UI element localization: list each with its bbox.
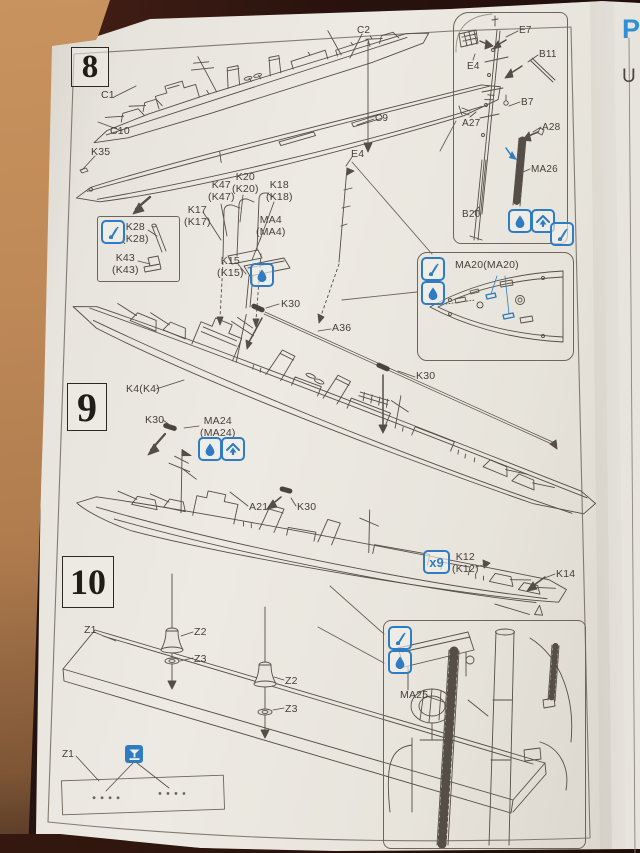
- photographed-instruction-sheet: 8 9 10 C1 C10 C2 C9 K35 E4 K47 (K47) K20…: [0, 0, 640, 853]
- callout-z2-aft: Z2: [285, 676, 298, 688]
- step-9-numeral: 9: [77, 384, 97, 431]
- step-10-number: 10: [62, 556, 114, 608]
- nameplate-drawing: [61, 775, 224, 815]
- adjacent-page-text-fragment: U: [622, 66, 636, 88]
- e4-mast-part-drawing: [318, 168, 354, 323]
- ship-8-superstructure-drawing: [79, 0, 433, 148]
- inset-callout-e4: E4: [467, 61, 480, 72]
- callout-z1: Z1: [84, 625, 97, 637]
- glue-icon: [508, 209, 532, 233]
- callout-k12: K12 (K12): [452, 552, 479, 576]
- detail-inset-frame: [383, 620, 586, 849]
- callout-c9: C9: [375, 113, 388, 124]
- callout-a21: A21: [249, 502, 268, 514]
- fit-direction-icon: [221, 437, 245, 461]
- callout-a36: A36: [332, 323, 351, 335]
- step-8-numeral: 8: [82, 49, 99, 86]
- paint-icon: [388, 626, 412, 650]
- paint-icon: [550, 222, 574, 246]
- callout-k30-port: K30: [145, 415, 164, 427]
- callout-k30-aft: K30: [416, 371, 435, 383]
- adjacent-page-heading-fragment: P: [622, 14, 640, 45]
- callout-k35: K35: [91, 147, 110, 159]
- inset-callout-b11: B11: [539, 49, 557, 60]
- inset-callout-ma26: MA26: [531, 164, 558, 175]
- pedestal-parts: [161, 628, 276, 715]
- callout-k47: K47 (K47): [208, 180, 235, 204]
- step-8-number: 8: [71, 47, 109, 87]
- pedestal-arrows: [172, 574, 265, 731]
- inset-callout-b7: B7: [521, 97, 534, 108]
- inset-callout-b20: B20: [462, 209, 480, 220]
- callout-k17: K17 (K17): [184, 205, 211, 229]
- drill-holes-icon: [125, 745, 143, 763]
- callout-k28: K28 (K28): [122, 222, 149, 246]
- glue-icon: [250, 263, 274, 287]
- callout-k43: K43 (K43): [112, 253, 139, 277]
- callout-k30-fore: K30: [281, 299, 300, 311]
- k35-part: [80, 168, 88, 173]
- callout-z1-plate: Z1: [62, 749, 74, 760]
- callout-e4-main: E4: [351, 149, 364, 161]
- callout-k30-boat: K30: [297, 502, 316, 514]
- glue-icon: [388, 650, 412, 674]
- inset-callout-ma25: MA25: [400, 690, 428, 702]
- callout-c2: C2: [357, 25, 370, 36]
- glue-icon: [198, 437, 222, 461]
- adjacent-page-border: [629, 38, 635, 853]
- inset-callout-e7: E7: [519, 25, 532, 36]
- inset-callout-a28: A28: [542, 122, 560, 133]
- callout-k20: K20 (K20): [232, 172, 259, 196]
- callout-z2-fore: Z2: [194, 627, 207, 639]
- inset-callout-lines: [318, 121, 456, 663]
- callout-c10: C10: [110, 126, 130, 138]
- callout-k14: K14: [556, 569, 575, 581]
- step-10-numeral: 10: [70, 561, 106, 603]
- quantity-x9-icon: x9: [423, 550, 450, 574]
- callout-ma4: MA4 (MA4): [256, 215, 286, 239]
- inset-callout-ma20: MA20(MA20): [455, 260, 519, 272]
- ship-10-drawing: [73, 430, 578, 623]
- callout-k18: K18 (K18): [266, 180, 293, 204]
- callout-c1: C1: [101, 90, 115, 102]
- callout-z3-aft: Z3: [285, 704, 298, 716]
- callout-ma24: MA24 (MA24): [200, 416, 236, 440]
- step-9-number: 9: [67, 383, 107, 431]
- inset-callout-a27: A27: [462, 118, 480, 129]
- glue-icon: [421, 281, 445, 305]
- paint-icon: [421, 257, 445, 281]
- callout-k15: K15 (K15): [217, 256, 244, 280]
- callout-z3-fore: Z3: [194, 654, 207, 666]
- callout-k4: K4(K4): [126, 384, 160, 396]
- paint-icon: [101, 220, 125, 244]
